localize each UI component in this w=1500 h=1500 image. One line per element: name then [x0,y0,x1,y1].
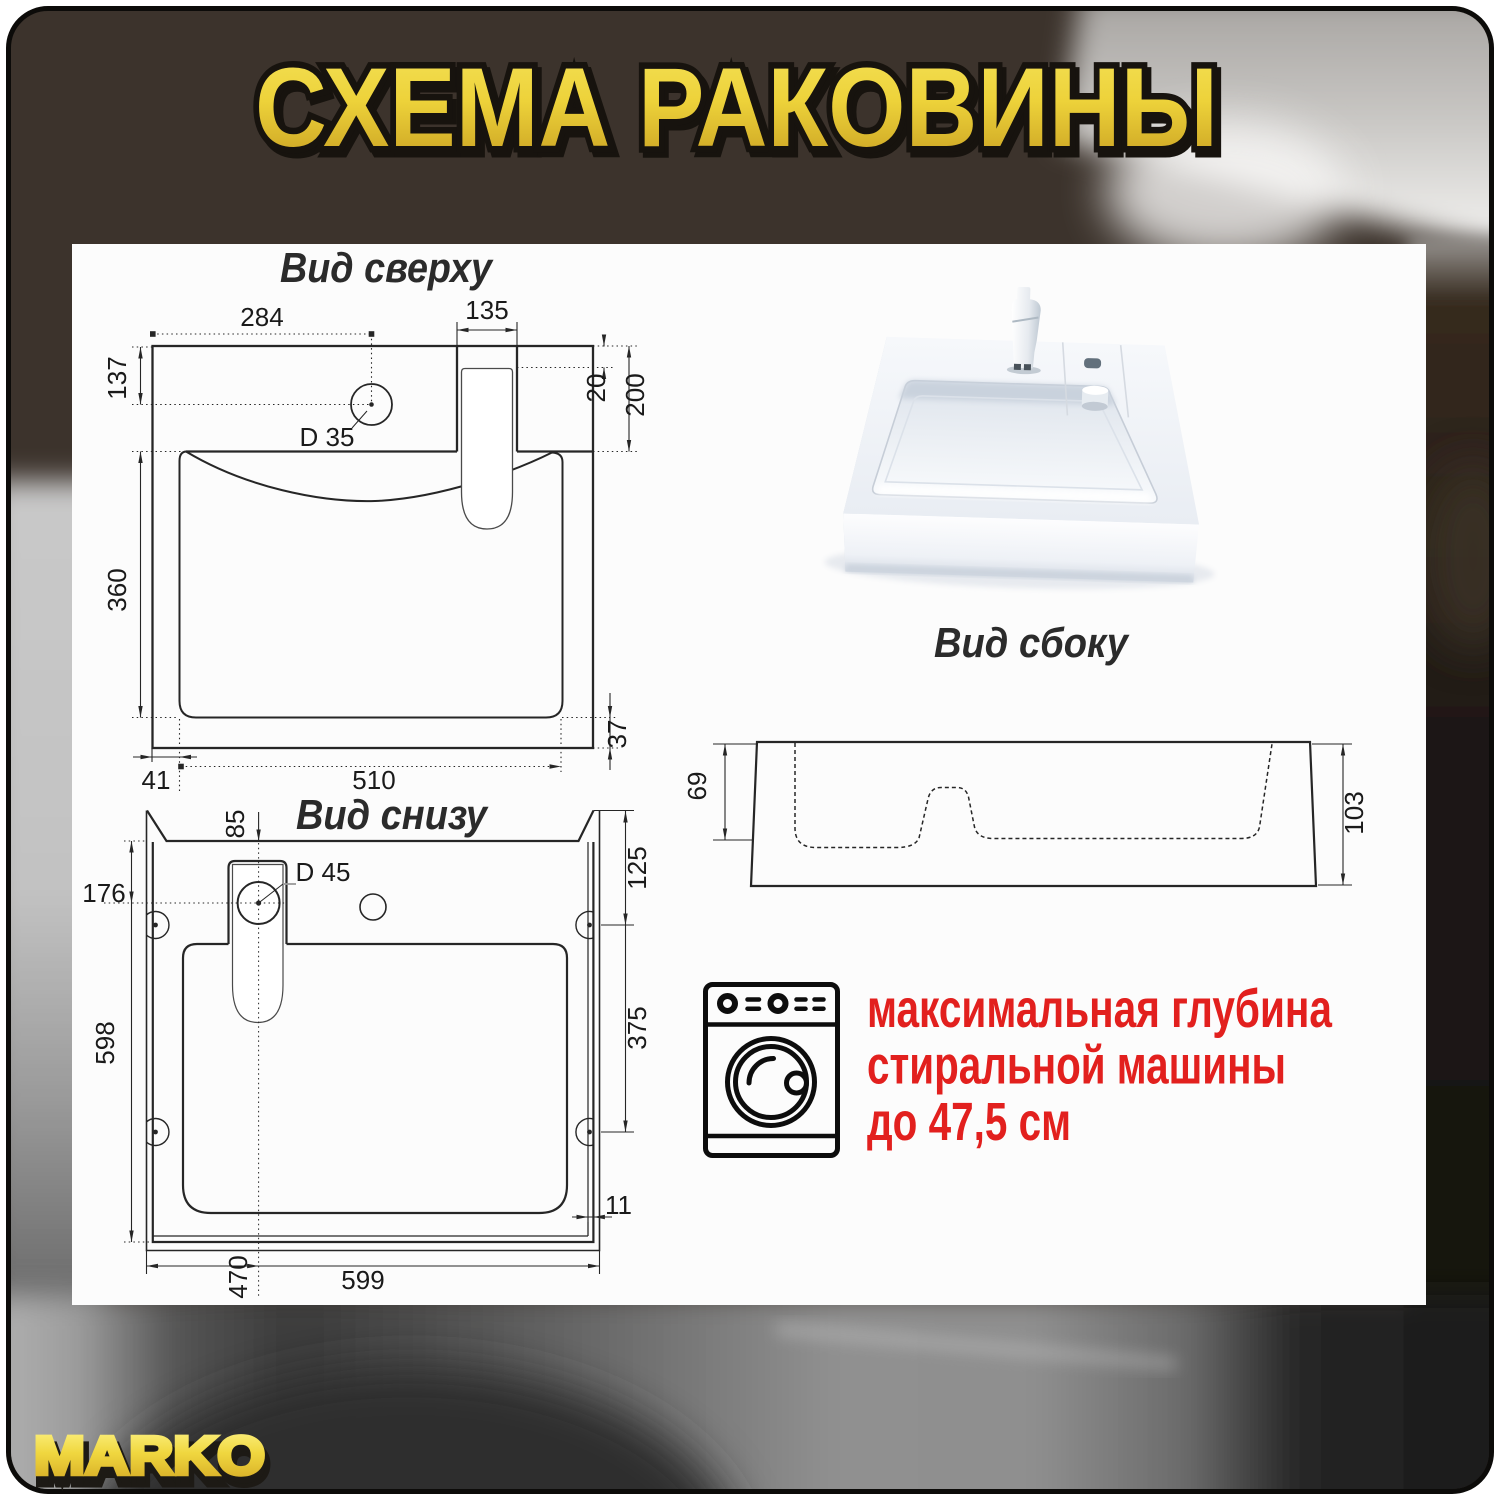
svg-text:СХЕМА РАКОВИНЫ: СХЕМА РАКОВИНЫ [255,45,1218,170]
svg-text:MARKO: MARKO [34,1426,265,1486]
